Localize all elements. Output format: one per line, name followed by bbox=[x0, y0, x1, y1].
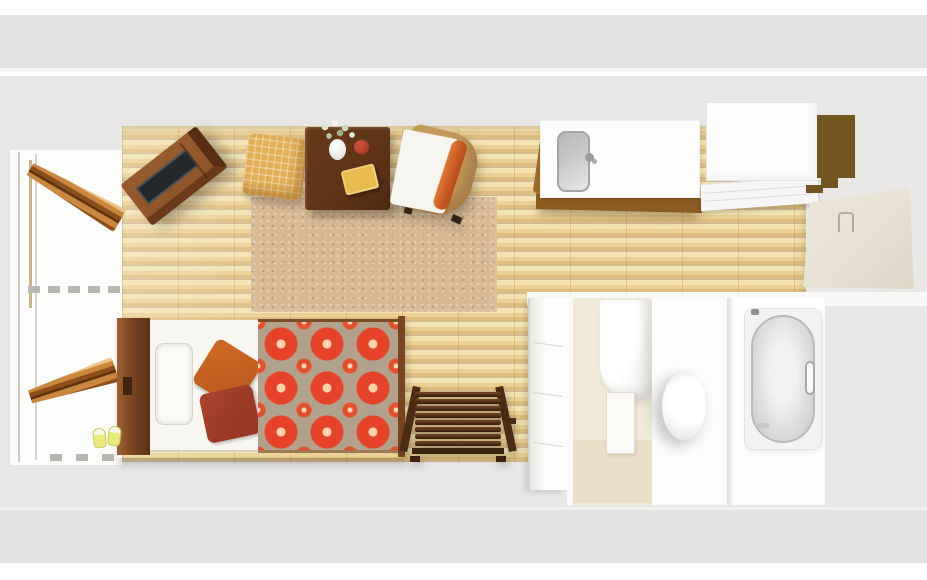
laundry-room bbox=[567, 298, 652, 505]
vase bbox=[329, 139, 346, 160]
bathtub-drain bbox=[757, 423, 769, 428]
laundry-door-panel bbox=[606, 392, 635, 454]
headboard-slot bbox=[123, 377, 132, 395]
sill-mark bbox=[28, 286, 40, 293]
drawer-seam bbox=[533, 392, 563, 397]
window-sill-track bbox=[28, 286, 128, 294]
bathtub-faucet bbox=[751, 309, 759, 315]
refrigerator bbox=[706, 102, 818, 181]
sill-mark bbox=[50, 454, 62, 461]
bench-slat bbox=[415, 392, 501, 397]
bench-slat bbox=[415, 441, 501, 446]
rattan-ottoman bbox=[241, 133, 308, 202]
panel-step bbox=[806, 185, 823, 193]
refrigerator-shelf-line bbox=[705, 185, 813, 194]
bench-slat bbox=[415, 420, 501, 425]
sill-mark bbox=[108, 286, 120, 293]
single-bed bbox=[117, 315, 405, 458]
drawer-cabinet bbox=[528, 298, 567, 490]
washing-machine bbox=[600, 300, 652, 400]
toilet-bowl bbox=[662, 372, 706, 440]
sill-mark bbox=[48, 286, 60, 293]
sill-mark bbox=[102, 454, 114, 461]
toilet-room bbox=[652, 298, 727, 505]
floral-blanket bbox=[258, 319, 398, 453]
bench-slat bbox=[415, 399, 501, 404]
bench-slat bbox=[415, 434, 501, 439]
sink-faucet bbox=[585, 153, 594, 162]
sill-mark bbox=[88, 286, 100, 293]
bathtub bbox=[744, 308, 822, 450]
window-frame-inner bbox=[35, 154, 37, 460]
entry-door bbox=[802, 186, 914, 289]
kitchen-sink bbox=[557, 131, 590, 192]
bench-bottom-bar bbox=[412, 448, 504, 454]
teapot bbox=[354, 140, 369, 154]
window-frame-outer bbox=[18, 152, 20, 462]
top-wall bbox=[0, 15, 927, 72]
bench-slat bbox=[415, 406, 501, 411]
drawer-seam bbox=[533, 342, 563, 347]
kitchen-counter bbox=[540, 120, 700, 198]
floorplan-render bbox=[0, 0, 927, 580]
bathtub-grab-handle bbox=[805, 361, 815, 395]
yellow-cushion bbox=[340, 163, 379, 195]
armchair-foot bbox=[451, 214, 463, 224]
toilet bbox=[656, 366, 708, 458]
bathroom-wall-shade bbox=[727, 298, 734, 505]
bench-slat bbox=[415, 427, 501, 432]
drawer-seam bbox=[533, 442, 563, 447]
bottom-wall bbox=[0, 507, 927, 563]
coffee-table bbox=[305, 127, 390, 210]
bench-stub bbox=[508, 418, 516, 424]
kitchen-cabinet-panel bbox=[817, 115, 855, 178]
slipper bbox=[92, 427, 107, 448]
sill-mark bbox=[76, 454, 88, 461]
door-handle-icon bbox=[838, 212, 854, 232]
refrigerator-shelf-line bbox=[705, 193, 813, 202]
bench-foot bbox=[496, 456, 506, 462]
bathroom bbox=[727, 298, 825, 505]
slatted-bench bbox=[402, 384, 514, 464]
panel-step bbox=[821, 177, 838, 188]
sill-mark bbox=[68, 286, 80, 293]
bed-pillow bbox=[155, 343, 193, 425]
slipper bbox=[107, 425, 122, 446]
bench-slat bbox=[415, 413, 501, 418]
bench-foot bbox=[410, 456, 420, 462]
slippers bbox=[93, 426, 127, 450]
